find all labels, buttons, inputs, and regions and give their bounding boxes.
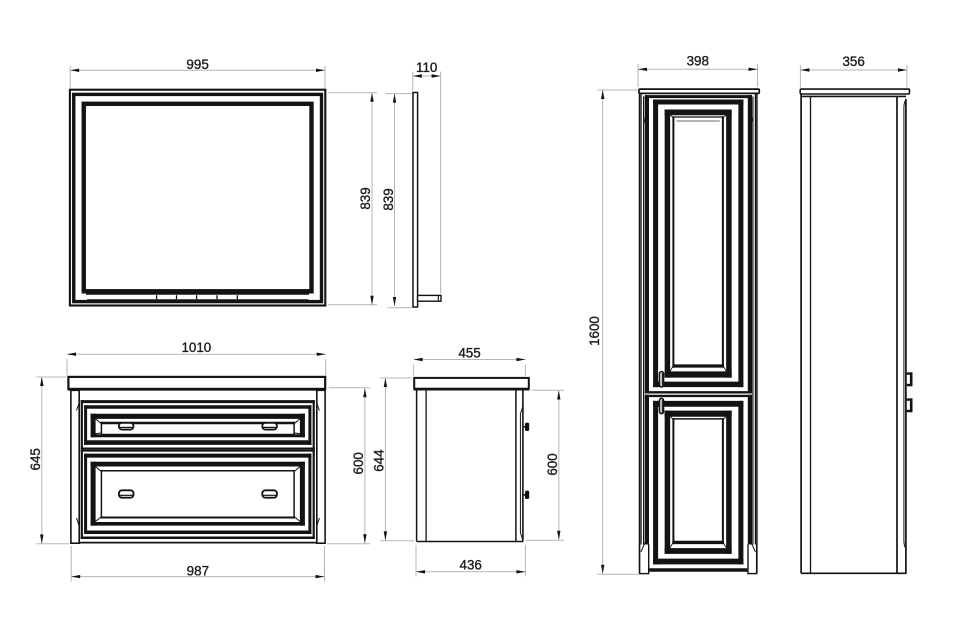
svg-text:995: 995	[186, 57, 208, 72]
svg-text:600: 600	[545, 453, 560, 475]
svg-text:645: 645	[28, 448, 43, 470]
svg-text:839: 839	[358, 187, 373, 209]
svg-text:839: 839	[381, 188, 396, 210]
svg-text:356: 356	[842, 54, 864, 69]
svg-text:600: 600	[351, 452, 366, 474]
svg-text:455: 455	[458, 345, 480, 360]
svg-text:110: 110	[416, 60, 437, 75]
svg-text:644: 644	[372, 449, 387, 472]
svg-text:1600: 1600	[587, 316, 602, 346]
svg-text:436: 436	[460, 558, 482, 573]
svg-text:398: 398	[687, 54, 709, 69]
svg-text:987: 987	[187, 563, 209, 578]
svg-text:1010: 1010	[181, 340, 211, 355]
